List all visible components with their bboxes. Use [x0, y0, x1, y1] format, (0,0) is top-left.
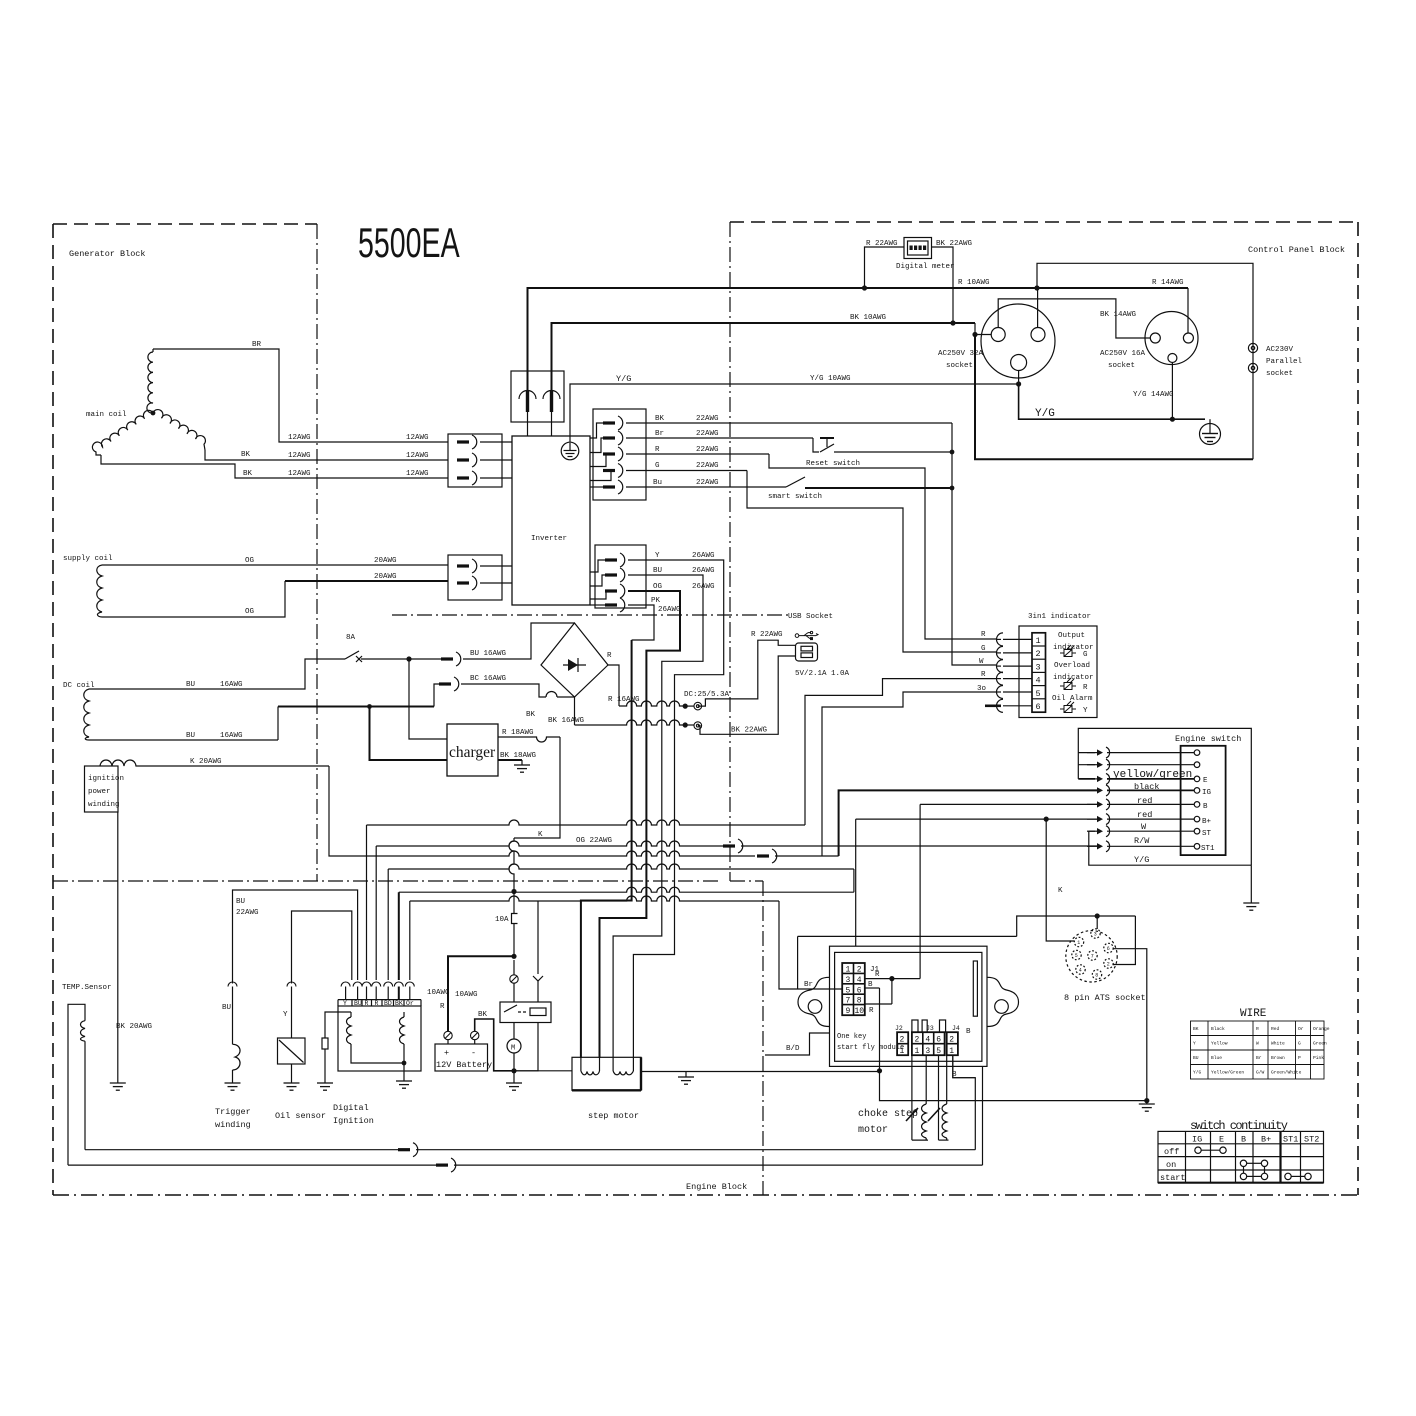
svg-text:20AWG: 20AWG [374, 557, 397, 565]
svg-text:main coil: main coil [86, 411, 127, 419]
svg-text:Br: Br [1256, 1055, 1262, 1061]
svg-text:charger: charger [449, 744, 496, 761]
svg-text:indicator: indicator [1053, 674, 1094, 682]
svg-text:power: power [88, 788, 111, 796]
svg-text:G: G [1083, 651, 1088, 659]
svg-text:BR: BR [252, 341, 262, 349]
svg-text:start: start [1160, 1173, 1186, 1183]
svg-text:6: 6 [1107, 946, 1110, 952]
svg-text:1: 1 [1036, 636, 1041, 646]
svg-text:Y/G 10AWG: Y/G 10AWG [810, 375, 851, 383]
svg-text:R: R [1083, 684, 1088, 692]
svg-text:IG: IG [1202, 789, 1212, 797]
svg-text:black: black [1134, 782, 1160, 792]
svg-text:R: R [981, 631, 986, 639]
svg-text:1: 1 [846, 966, 851, 975]
svg-text:Y/G 14AWG: Y/G 14AWG [1133, 391, 1174, 399]
svg-text:R/W: R/W [1134, 836, 1150, 846]
svg-text:Y/G: Y/G [1035, 408, 1055, 420]
svg-text:BK 22AWG: BK 22AWG [731, 727, 768, 735]
svg-text:OG 22AWG: OG 22AWG [576, 837, 613, 845]
svg-text:Y/G: Y/G [1193, 1070, 1202, 1076]
svg-text:socket: socket [1108, 362, 1135, 370]
svg-text:AC250V 32A: AC250V 32A [938, 350, 984, 358]
svg-text:BD: BD [384, 1000, 392, 1007]
svg-text:ST1: ST1 [1283, 1135, 1298, 1145]
svg-text:TEMP.Sensor: TEMP.Sensor [62, 984, 112, 992]
svg-text:8: 8 [1095, 973, 1098, 979]
svg-text:16AWG: 16AWG [220, 681, 243, 689]
svg-text:2: 2 [857, 966, 862, 975]
svg-text:2: 2 [949, 1036, 954, 1045]
svg-text:10AWG: 10AWG [455, 991, 478, 999]
svg-text:12AWG: 12AWG [288, 452, 311, 460]
svg-text:B+: B+ [1261, 1135, 1271, 1145]
svg-text:Y: Y [1083, 707, 1088, 715]
svg-text:5: 5 [1036, 689, 1041, 699]
svg-text:5500EA: 5500EA [358, 218, 460, 266]
svg-text:ST1: ST1 [1201, 845, 1215, 853]
svg-text:Overload: Overload [1054, 662, 1090, 670]
svg-text:PK: PK [651, 597, 661, 605]
svg-text:K: K [538, 831, 543, 839]
svg-text:1: 1 [900, 1047, 905, 1056]
svg-text:22AWG: 22AWG [696, 430, 719, 438]
svg-text:White: White [1271, 1041, 1285, 1047]
svg-text:3: 3 [1094, 932, 1097, 938]
svg-text:IG: IG [1192, 1135, 1202, 1145]
svg-text:12AWG: 12AWG [288, 470, 311, 478]
svg-text:12AWG: 12AWG [406, 452, 429, 460]
svg-text:ignition: ignition [88, 775, 124, 783]
svg-text:6: 6 [857, 986, 862, 995]
svg-text:2: 2 [1107, 962, 1110, 968]
svg-text:Y/G: Y/G [1134, 855, 1149, 865]
svg-text:1: 1 [1077, 940, 1080, 946]
svg-text:supply coil: supply coil [63, 555, 113, 563]
svg-text:BK 16AWG: BK 16AWG [548, 717, 585, 725]
svg-text:red: red [1137, 796, 1152, 806]
svg-text:2: 2 [915, 1036, 920, 1045]
svg-text:BU: BU [236, 898, 245, 906]
svg-text:5: 5 [846, 986, 851, 995]
svg-text:Parallel: Parallel [1266, 358, 1303, 366]
svg-text:Yellow: Yellow [1211, 1041, 1228, 1047]
svg-text:Blue: Blue [1211, 1055, 1222, 1061]
svg-text:4: 4 [925, 1036, 930, 1045]
svg-text:26AWG: 26AWG [692, 583, 715, 591]
svg-text:3: 3 [846, 976, 851, 985]
svg-text:2: 2 [1036, 649, 1041, 659]
svg-text:W: W [1256, 1041, 1259, 1047]
svg-text:B: B [966, 1028, 971, 1036]
svg-text:K 20AWG: K 20AWG [190, 758, 222, 766]
svg-text:One key: One key [837, 1033, 866, 1041]
svg-text:Bu: Bu [653, 479, 662, 487]
svg-text:4: 4 [1079, 968, 1082, 974]
svg-text:BU: BU [186, 681, 195, 689]
svg-text:M: M [511, 1045, 515, 1053]
svg-text:W: W [979, 658, 984, 666]
svg-text:12AWG: 12AWG [288, 434, 311, 442]
svg-text:26AWG: 26AWG [658, 606, 681, 614]
svg-text:Digital: Digital [333, 1103, 369, 1113]
svg-text:R 10AWG: R 10AWG [958, 279, 990, 287]
svg-text:4: 4 [1036, 676, 1041, 686]
svg-text:OG: OG [653, 583, 663, 591]
svg-text:26AWG: 26AWG [692, 567, 715, 575]
svg-text:BU: BU [222, 1004, 231, 1012]
svg-text:BU: BU [1193, 1055, 1199, 1061]
svg-text:off: off [1164, 1147, 1179, 1157]
svg-text:-: - [471, 1048, 476, 1058]
svg-text:R: R [875, 971, 880, 979]
svg-text:8: 8 [857, 997, 862, 1006]
svg-text:Or: Or [1298, 1026, 1304, 1032]
svg-text:R: R [607, 652, 612, 660]
svg-text:R: R [440, 1003, 445, 1011]
svg-text:J4: J4 [952, 1025, 960, 1032]
svg-text:start fly module: start fly module [837, 1044, 904, 1052]
svg-text:Engine switch: Engine switch [1175, 734, 1241, 744]
svg-text:10: 10 [855, 1007, 865, 1016]
svg-text:G: G [981, 645, 986, 653]
svg-text:winding: winding [215, 1120, 251, 1130]
svg-text:R: R [655, 446, 660, 454]
svg-text:7: 7 [1091, 954, 1094, 960]
svg-text:5: 5 [936, 1047, 941, 1056]
svg-text:5V/2.1A 1.0A: 5V/2.1A 1.0A [795, 670, 850, 678]
svg-text:22AWG: 22AWG [696, 415, 719, 423]
svg-text:10AWG: 10AWG [427, 989, 450, 997]
svg-text:R 16AWG: R 16AWG [608, 696, 640, 704]
svg-text:Inverter: Inverter [531, 535, 567, 543]
svg-text:BK 10AWG: BK 10AWG [850, 314, 887, 322]
svg-text:2: 2 [900, 1036, 905, 1045]
svg-text:R 22AWG: R 22AWG [751, 631, 783, 639]
svg-text:socket: socket [946, 362, 973, 370]
svg-text:Y: Y [283, 1011, 288, 1019]
svg-text:smart switch: smart switch [768, 493, 822, 501]
svg-text:Y: Y [655, 552, 660, 560]
svg-text:Y: Y [343, 1000, 347, 1007]
svg-text:R: R [1256, 1026, 1259, 1032]
svg-text:20AWG: 20AWG [374, 573, 397, 581]
svg-text:3: 3 [1036, 662, 1041, 672]
svg-text:W: W [1141, 822, 1147, 832]
svg-text:Brown: Brown [1271, 1055, 1285, 1061]
svg-text:22AWG: 22AWG [696, 446, 719, 454]
svg-text:+: + [444, 1048, 449, 1058]
svg-text:Or: Or [406, 1000, 414, 1007]
svg-text:E: E [1203, 777, 1208, 785]
svg-text:G: G [1298, 1041, 1301, 1047]
svg-text:OG: OG [245, 608, 255, 616]
svg-text:5: 5 [1075, 953, 1078, 959]
svg-text:16AWG: 16AWG [220, 732, 243, 740]
svg-text:8A: 8A [346, 634, 356, 642]
svg-text:R: R [375, 1000, 379, 1007]
svg-text:AC230V: AC230V [1266, 346, 1294, 354]
svg-text:3in1 indicator: 3in1 indicator [1028, 613, 1091, 621]
svg-text:22AWG: 22AWG [696, 462, 719, 470]
svg-text:4: 4 [857, 976, 862, 985]
svg-text:Reset switch: Reset switch [806, 460, 860, 468]
svg-text:Y/G: Y/G [616, 374, 631, 384]
svg-text:Pink: Pink [1313, 1055, 1324, 1061]
svg-text:Generator Block: Generator Block [69, 249, 146, 259]
svg-text:Trigger: Trigger [215, 1107, 251, 1117]
svg-text:Y: Y [1193, 1041, 1196, 1047]
svg-text:BK: BK [478, 1011, 488, 1019]
svg-text:choke step: choke step [858, 1108, 918, 1120]
svg-text:7: 7 [846, 997, 851, 1006]
svg-text:DC:25/5.3A: DC:25/5.3A [684, 691, 730, 699]
svg-text:WIRE: WIRE [1240, 1008, 1267, 1020]
svg-text:step motor: step motor [588, 1111, 639, 1121]
svg-text:12AWG: 12AWG [406, 470, 429, 478]
svg-text:G: G [655, 462, 660, 470]
svg-text:BK 20AWG: BK 20AWG [116, 1023, 153, 1031]
svg-text:BK: BK [243, 470, 253, 478]
svg-text:9: 9 [846, 1007, 851, 1016]
svg-text:Red: Red [1271, 1026, 1280, 1032]
svg-text:22AWG: 22AWG [696, 479, 719, 487]
svg-text:10A: 10A [495, 916, 509, 924]
svg-text:R 14AWG: R 14AWG [1152, 279, 1184, 287]
svg-text:R: R [365, 1000, 369, 1007]
svg-text:BU: BU [186, 732, 195, 740]
svg-text:yellow/green: yellow/green [1113, 769, 1192, 781]
svg-text:6: 6 [1036, 702, 1041, 712]
svg-text:Digital meter: Digital meter [896, 263, 955, 271]
svg-text:BK 14AWG: BK 14AWG [1100, 311, 1137, 319]
svg-text:8 pin ATS socket: 8 pin ATS socket [1064, 993, 1146, 1003]
svg-text:Orange: Orange [1313, 1026, 1330, 1032]
svg-text:Green/White: Green/White [1271, 1070, 1302, 1076]
svg-text:P: P [1298, 1055, 1301, 1061]
svg-text:BK: BK [1193, 1026, 1199, 1032]
svg-text:BK 18AWG: BK 18AWG [500, 752, 537, 760]
svg-text:BU 16AWG: BU 16AWG [470, 650, 507, 658]
svg-text:BK: BK [526, 711, 536, 719]
svg-text:red: red [1137, 810, 1152, 820]
svg-text:12V Battery: 12V Battery [436, 1060, 492, 1070]
svg-text:B/D: B/D [786, 1045, 800, 1053]
svg-text:winding: winding [88, 801, 120, 809]
svg-text:motor: motor [858, 1125, 888, 1136]
svg-text:Oil Alarm: Oil Alarm [1052, 695, 1093, 703]
svg-text:on: on [1166, 1160, 1176, 1170]
svg-text:ST2: ST2 [1304, 1135, 1319, 1145]
svg-text:E: E [1219, 1135, 1224, 1145]
svg-text:R: R [981, 671, 986, 679]
svg-text:B: B [1241, 1135, 1246, 1145]
svg-text:Ignition: Ignition [333, 1116, 374, 1126]
svg-text:3: 3 [925, 1047, 930, 1056]
svg-text:G/W: G/W [1256, 1070, 1265, 1076]
svg-text:B: B [1203, 803, 1208, 811]
svg-text:B: B [868, 981, 873, 989]
svg-text:Black: Black [1211, 1026, 1225, 1032]
svg-text:J2: J2 [895, 1025, 903, 1032]
svg-text:K: K [1058, 887, 1063, 895]
svg-text:Yellow/Green: Yellow/Green [1211, 1070, 1244, 1076]
svg-text:Output: Output [1058, 632, 1085, 640]
svg-text:BU: BU [354, 1000, 362, 1007]
svg-text:Oil sensor: Oil sensor [275, 1111, 326, 1121]
svg-text:BK: BK [241, 451, 251, 459]
svg-text:1: 1 [949, 1047, 954, 1056]
svg-text:22AWG: 22AWG [236, 909, 259, 917]
svg-text:R: R [869, 1007, 874, 1015]
svg-text:B: B [952, 1071, 957, 1079]
svg-text:Br: Br [804, 981, 813, 989]
svg-text:Br: Br [655, 430, 664, 438]
svg-text:OG: OG [245, 557, 255, 565]
svg-text:26AWG: 26AWG [692, 552, 715, 560]
svg-text:1: 1 [915, 1047, 920, 1056]
svg-text:6: 6 [936, 1036, 941, 1045]
svg-text:socket: socket [1266, 370, 1293, 378]
svg-text:BC 16AWG: BC 16AWG [470, 675, 507, 683]
svg-text:R 18AWG: R 18AWG [502, 729, 534, 737]
svg-text:12AWG: 12AWG [406, 434, 429, 442]
svg-text:ST: ST [1202, 830, 1212, 838]
svg-text:Engine Block: Engine Block [686, 1182, 747, 1192]
svg-text:BK: BK [395, 1000, 403, 1007]
svg-text:Control Panel Block: Control Panel Block [1248, 245, 1345, 255]
svg-text:BK: BK [655, 415, 665, 423]
svg-text:AC250V 16A: AC250V 16A [1100, 350, 1146, 358]
svg-text:B+: B+ [1202, 818, 1212, 826]
svg-text:USB Socket: USB Socket [788, 613, 833, 621]
svg-text:BU: BU [653, 567, 662, 575]
svg-text:Green: Green [1313, 1041, 1327, 1047]
